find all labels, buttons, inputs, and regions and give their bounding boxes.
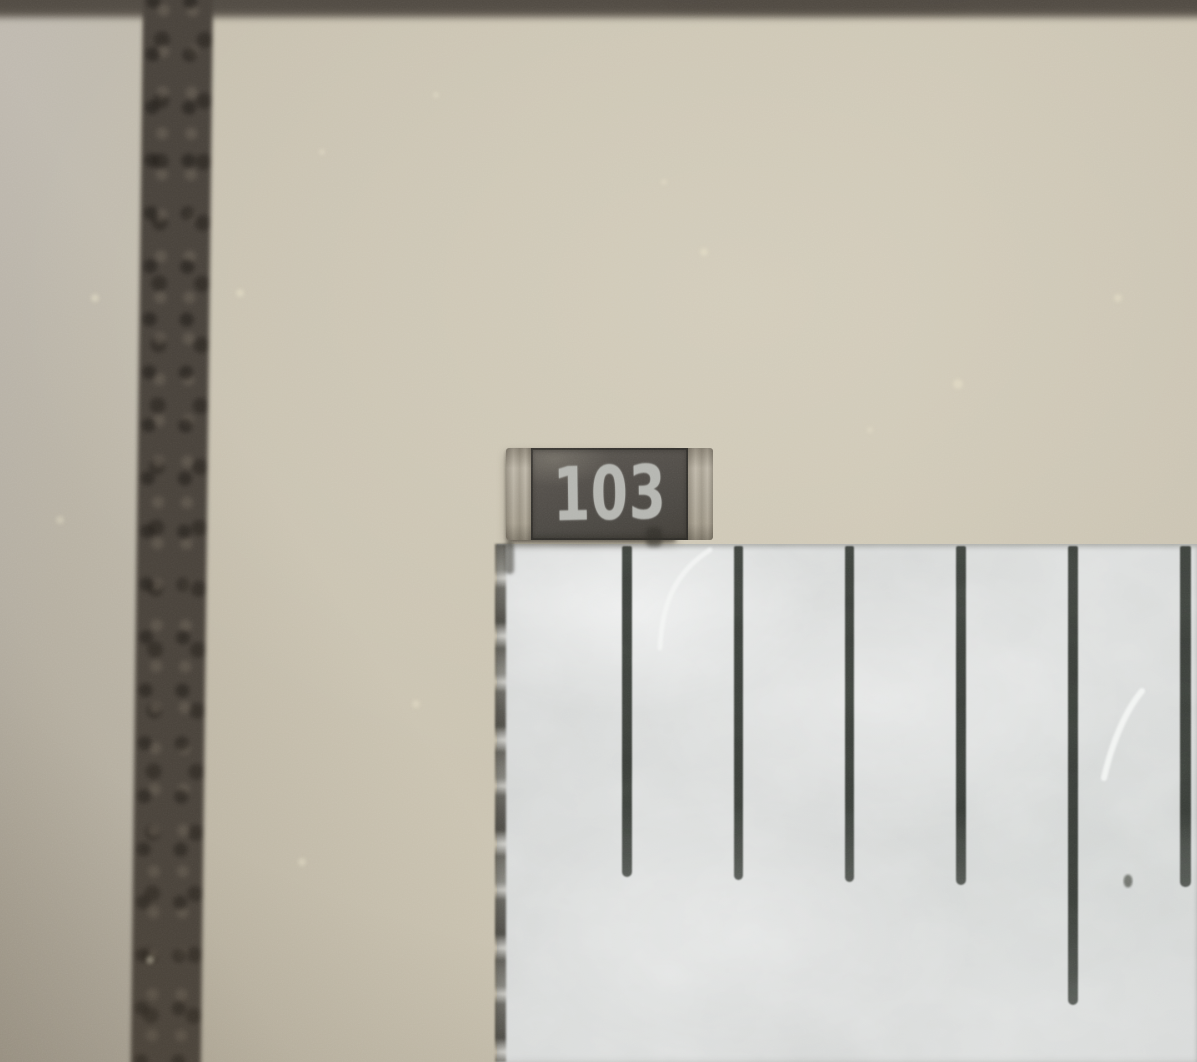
ruler-tick xyxy=(622,546,632,877)
ruler-tick xyxy=(845,546,854,882)
ruler-torn-left-edge xyxy=(495,544,506,1062)
ruler-tick xyxy=(1180,546,1191,887)
ruler-tick xyxy=(956,546,966,885)
tile-left-shading xyxy=(0,0,140,1062)
ruler-tick xyxy=(734,546,743,880)
ruler-tick xyxy=(1068,546,1078,1005)
resistor-body: 103 xyxy=(531,448,688,540)
resistor-cap-left xyxy=(506,448,531,540)
grout-line-vertical xyxy=(131,0,213,1062)
ruler xyxy=(497,544,1197,1062)
resistor-marking: 103 xyxy=(553,456,667,533)
resistor-shadow-smudge-left xyxy=(505,542,514,574)
resistor-cap-right xyxy=(688,448,713,540)
photo: 103 xyxy=(0,0,1197,1062)
resistor-shadow-smudge-right xyxy=(646,527,662,547)
